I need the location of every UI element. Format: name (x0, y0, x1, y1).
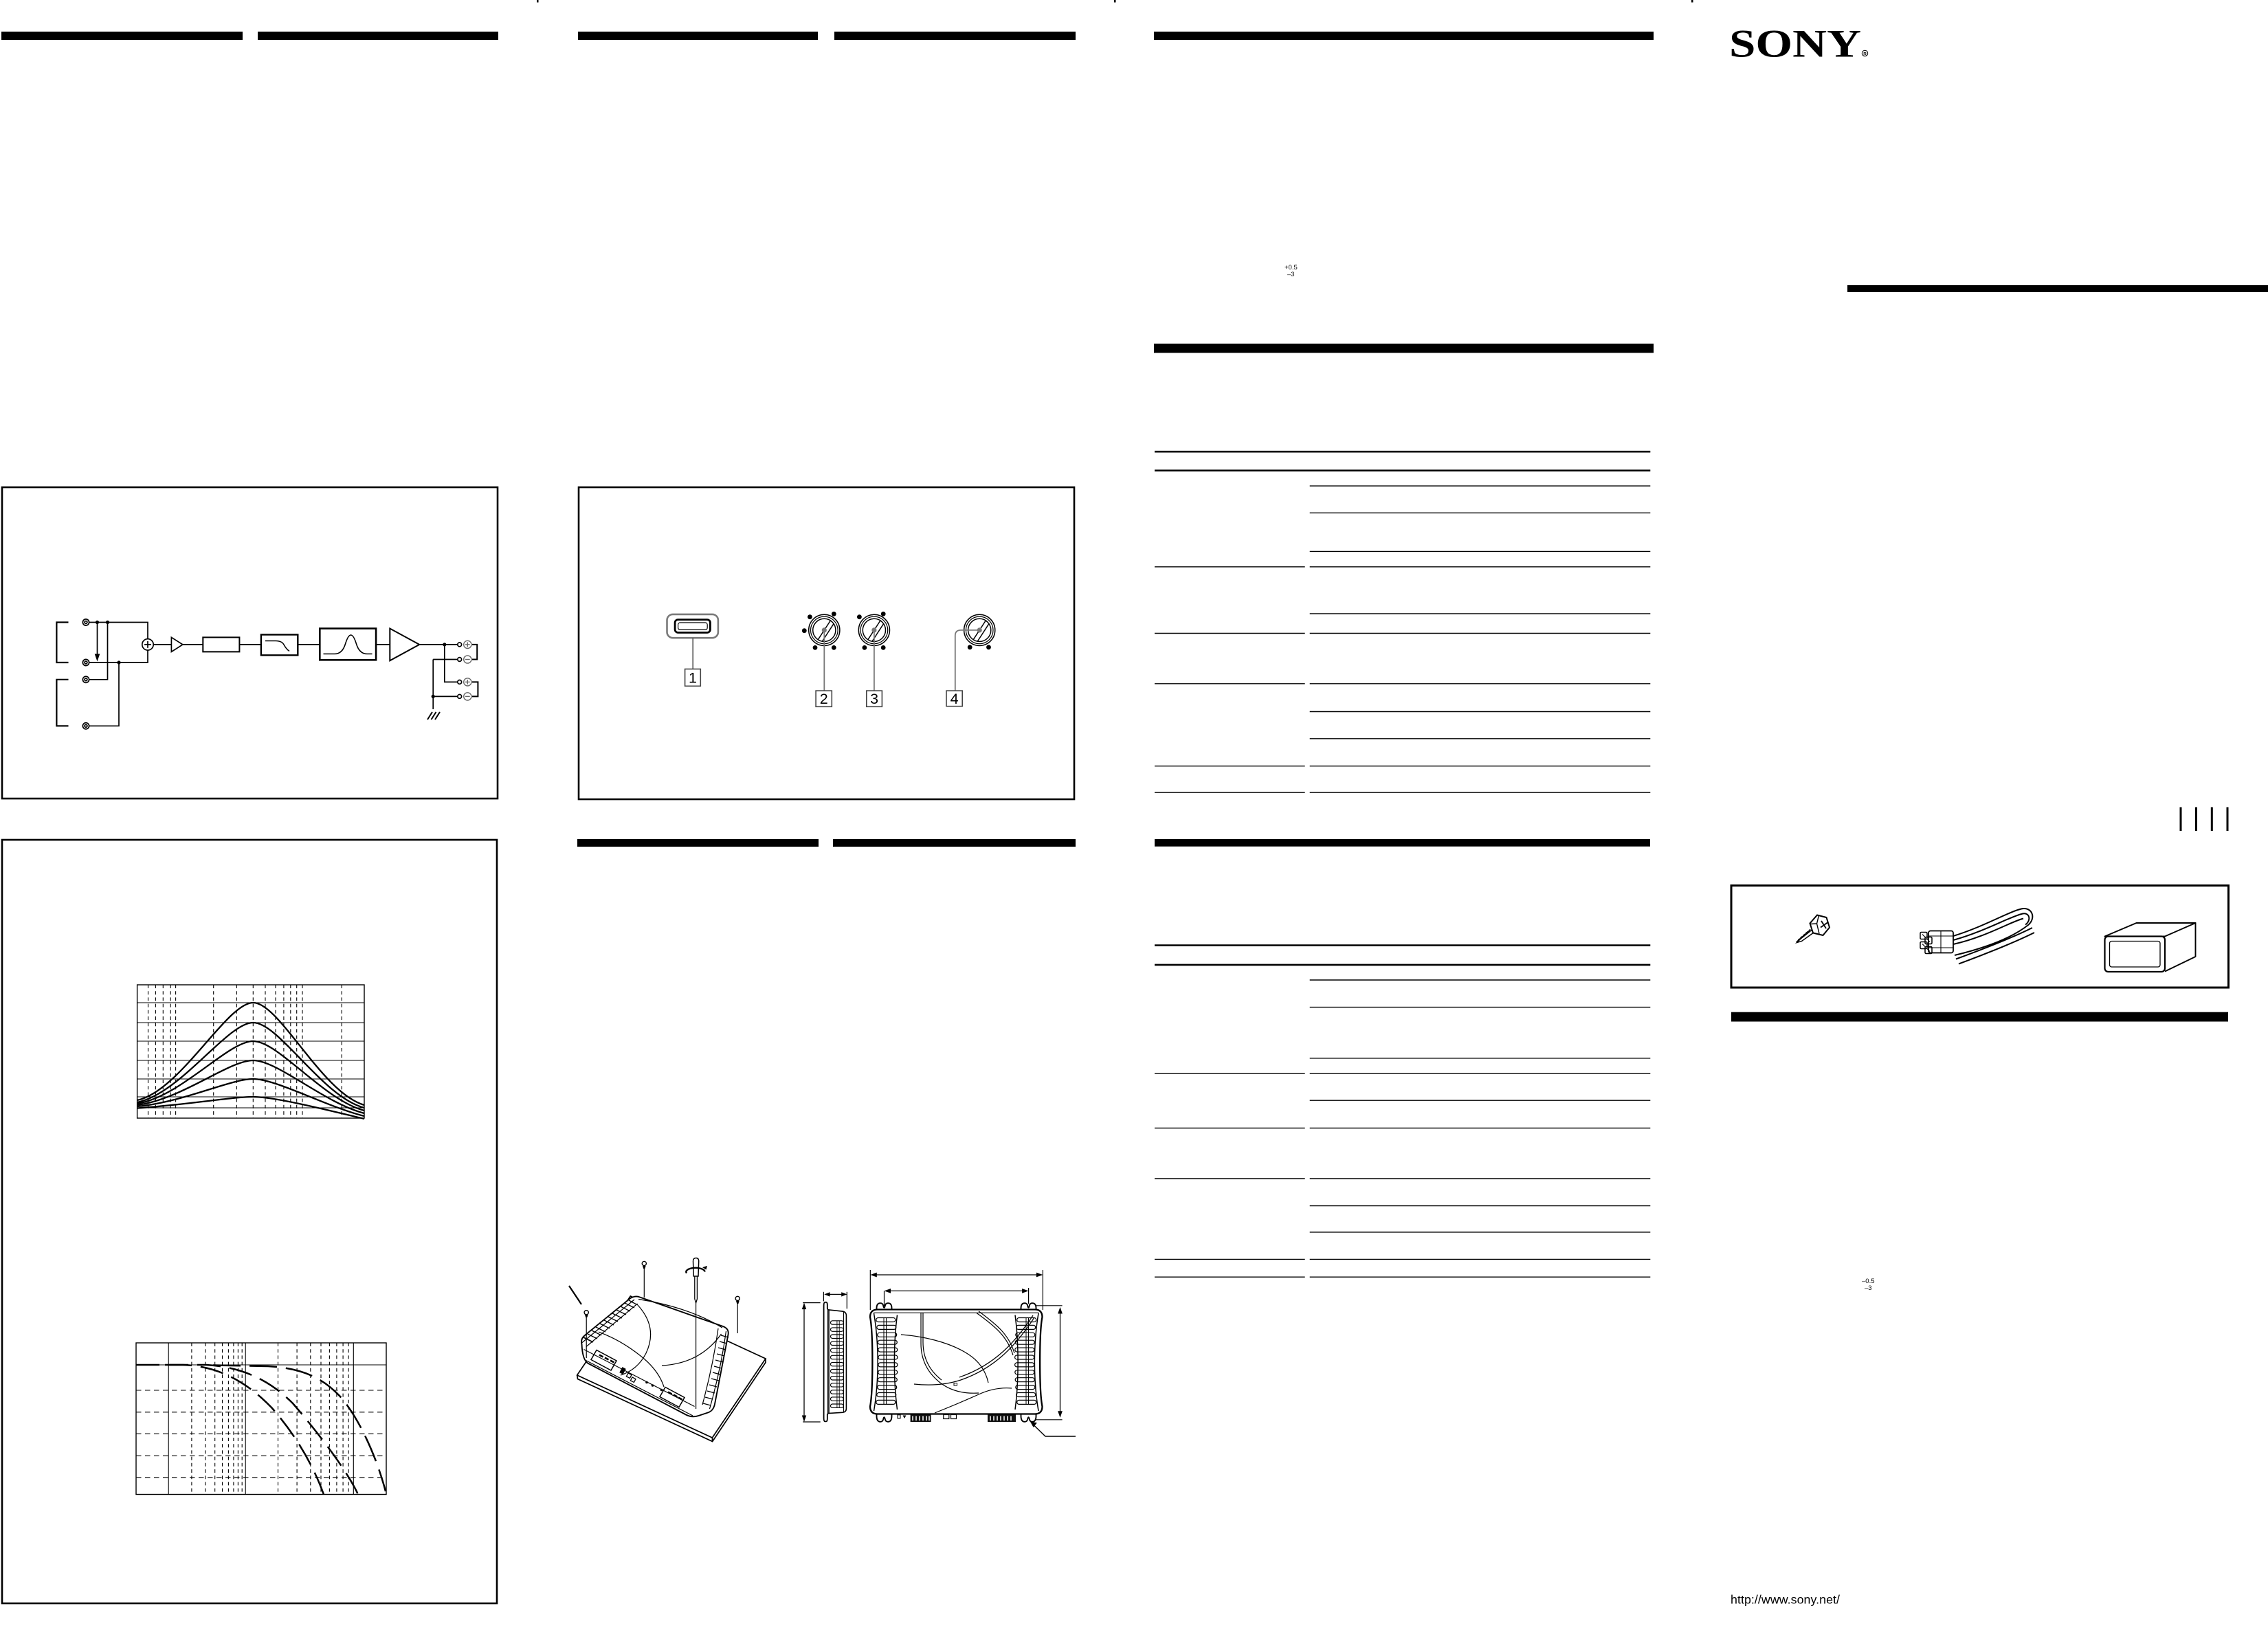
svg-text:2: 2 (820, 691, 828, 707)
svg-text:3: 3 (870, 691, 878, 707)
svg-text:–3: –3 (1287, 271, 1295, 278)
svg-text:SONY: SONY (1729, 23, 1861, 66)
svg-text:4: 4 (950, 691, 959, 707)
svg-text:http://www.sony.net/: http://www.sony.net/ (1731, 1593, 1840, 1607)
svg-text:–3: –3 (1865, 1284, 1872, 1292)
svg-text:1: 1 (689, 670, 697, 687)
svg-text:R: R (1863, 52, 1867, 56)
